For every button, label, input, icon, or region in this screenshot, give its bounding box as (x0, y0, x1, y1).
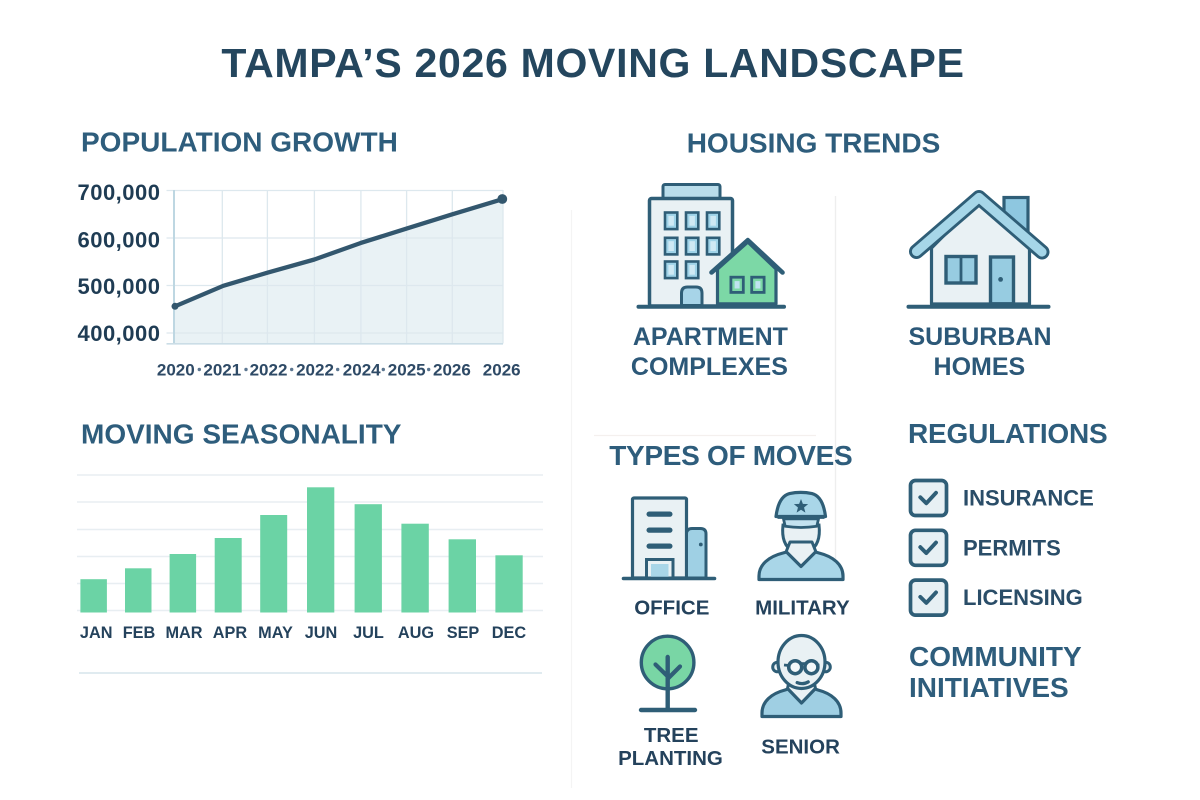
svg-text:2022: 2022 (250, 361, 288, 380)
svg-text:POPULATION GROWTH: POPULATION GROWTH (81, 127, 398, 158)
svg-text:500,000: 500,000 (77, 274, 160, 299)
svg-text:2022: 2022 (296, 361, 334, 380)
svg-text:COMPLEXES: COMPLEXES (631, 353, 788, 381)
svg-text:JAN: JAN (80, 624, 113, 642)
svg-text:400,000: 400,000 (77, 321, 160, 346)
svg-text:600,000: 600,000 (77, 228, 160, 253)
svg-text:HOUSING TRENDS: HOUSING TRENDS (687, 127, 941, 158)
svg-text:TYPES OF MOVES: TYPES OF MOVES (609, 440, 852, 471)
svg-text:OFFICE: OFFICE (634, 597, 709, 620)
svg-text:SUBURBAN: SUBURBAN (908, 323, 1051, 351)
svg-text:2026: 2026 (433, 361, 471, 380)
svg-text:APARTMENT: APARTMENT (633, 323, 788, 351)
svg-text:JUL: JUL (353, 624, 384, 642)
svg-text:MAY: MAY (258, 624, 293, 642)
svg-text:APR: APR (213, 624, 248, 642)
svg-text:COMMUNITY: COMMUNITY (909, 641, 1082, 672)
svg-text:PLANTING: PLANTING (618, 747, 723, 770)
svg-text:MAR: MAR (165, 624, 202, 642)
svg-text:INSURANCE: INSURANCE (963, 486, 1094, 511)
svg-text:HOMES: HOMES (934, 353, 1026, 381)
svg-text:LICENSING: LICENSING (963, 585, 1083, 610)
svg-text:2021: 2021 (203, 361, 241, 380)
svg-text:2025: 2025 (388, 361, 426, 380)
svg-text:700,000: 700,000 (77, 180, 160, 205)
svg-text:JUN: JUN (305, 624, 338, 642)
svg-text:TAMPA’S 2026 MOVING LANDSCAPE: TAMPA’S 2026 MOVING LANDSCAPE (221, 40, 964, 86)
svg-text:REGULATIONS: REGULATIONS (908, 418, 1108, 449)
svg-text:INITIATIVES: INITIATIVES (909, 672, 1069, 703)
svg-text:DEC: DEC (492, 624, 527, 642)
svg-text:AUG: AUG (398, 624, 434, 642)
svg-text:2020: 2020 (157, 361, 195, 380)
svg-text:TREE: TREE (644, 724, 699, 747)
svg-text:PERMITS: PERMITS (963, 535, 1061, 560)
svg-text:MOVING SEASONALITY: MOVING SEASONALITY (81, 419, 402, 450)
svg-text:SEP: SEP (447, 624, 480, 642)
svg-text:2026: 2026 (483, 361, 521, 380)
svg-text:FEB: FEB (123, 624, 156, 642)
svg-text:2024: 2024 (343, 361, 381, 380)
svg-text:SENIOR: SENIOR (761, 736, 840, 759)
svg-text:MILITARY: MILITARY (755, 597, 850, 620)
